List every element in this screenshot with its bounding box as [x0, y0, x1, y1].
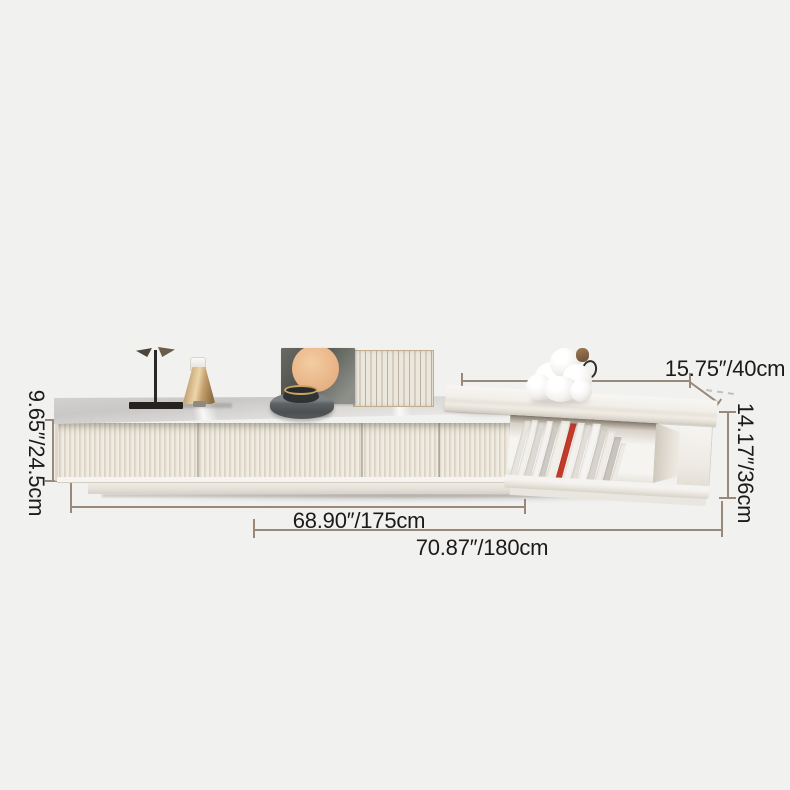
dim-tick [721, 501, 723, 537]
product-dimension-image: 9.65″/24.5cm 68.90″/175cm 70.87″/180cm 1… [0, 0, 790, 790]
slatted-art-panel [353, 350, 434, 407]
bird-sculpture-wing [158, 347, 175, 357]
cone-vase-foot [193, 401, 206, 407]
dim-tick [253, 519, 255, 538]
bird-sculpture-pole [154, 350, 157, 403]
bird-sculpture-base [129, 402, 183, 409]
dim-label-table-depth: 15.75″/40cm [645, 358, 790, 380]
drawer-divider [361, 423, 363, 481]
cabinet-left-edge [55, 420, 58, 481]
brass-bowl-rim [284, 385, 318, 395]
magazine-stack [510, 416, 632, 481]
shelf-right-panel [677, 425, 713, 487]
dim-tick [70, 483, 72, 513]
dim-label-cabinet-height: 9.65″/24.5cm [25, 388, 47, 518]
sculpture-blob [570, 380, 592, 402]
dim-label-total-length: 70.87″/180cm [402, 537, 562, 559]
dim-label-table-height: 14.17″/36cm [734, 398, 756, 528]
drawer-divider [438, 423, 440, 481]
drawer-divider [197, 423, 199, 481]
white-knot-sculpture [526, 346, 596, 403]
gold-cone-vase [183, 367, 215, 404]
dim-label-cabinet-length: 68.90″/175cm [279, 510, 439, 532]
hidden-edge-dashes [706, 389, 734, 395]
side-table-unit [439, 385, 717, 516]
bird-sculpture-wing [136, 348, 152, 357]
dim-line-cabinet-height [52, 420, 54, 482]
dim-line-table-height [727, 412, 729, 499]
